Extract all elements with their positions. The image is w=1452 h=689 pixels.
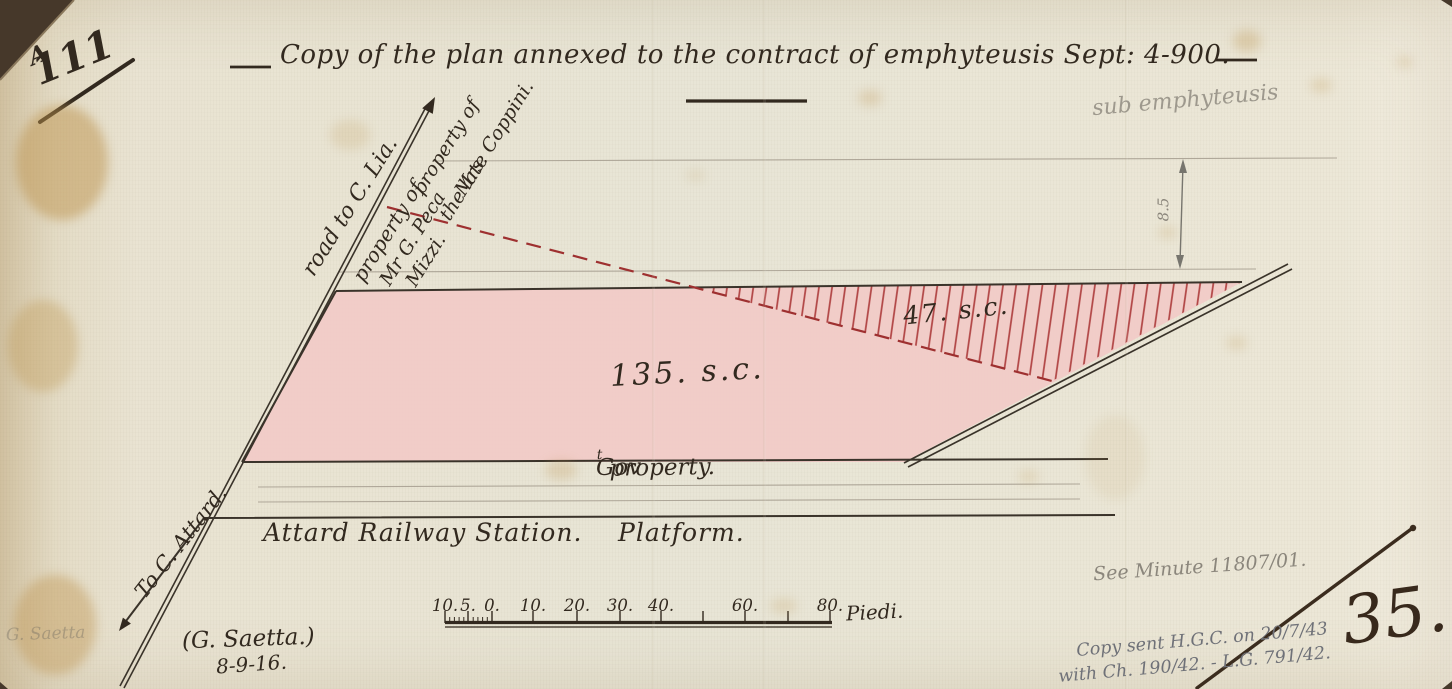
survey-date: 8-9-16. bbox=[215, 652, 287, 677]
reference-line-upper bbox=[432, 158, 1337, 161]
sheet-number-slash-dot bbox=[1410, 525, 1416, 531]
scale-label: 10. bbox=[520, 598, 546, 615]
scale-label: 20. bbox=[564, 598, 590, 615]
corner-notch-bottom-right bbox=[1442, 681, 1452, 689]
to-attard-arrowhead bbox=[119, 618, 131, 631]
dimension-arrowhead-bottom bbox=[1176, 255, 1184, 269]
scale-bar bbox=[445, 611, 832, 627]
govt-strip-line-2 bbox=[258, 499, 1080, 502]
reference-line-lower bbox=[338, 269, 1256, 272]
area-label-135: 135. s.c. bbox=[609, 354, 765, 392]
scale-label: 60. bbox=[732, 598, 758, 615]
corner-notch-bottom-left bbox=[0, 682, 8, 689]
station-label: Attard Railway Station. bbox=[263, 520, 582, 545]
scale-label: 40. bbox=[648, 598, 674, 615]
govt-strip-line-1 bbox=[258, 484, 1080, 487]
page-title: Copy of the plan annexed to the contract… bbox=[280, 42, 1230, 68]
scale-label: 5. bbox=[460, 598, 476, 615]
scale-label: 0. bbox=[484, 598, 500, 615]
surveyor-signature: (G. Saetta.) bbox=[182, 626, 315, 654]
dimension-arrow-line bbox=[1180, 164, 1183, 264]
corner-notch-top-right bbox=[1441, 0, 1452, 7]
govt-superscript: t bbox=[597, 447, 603, 463]
dimension-label: 8.5 bbox=[1156, 198, 1171, 222]
govt-property-label: Govtproperty. bbox=[596, 455, 715, 481]
govt-rest: property. bbox=[609, 454, 715, 482]
scale-label: 30. bbox=[607, 598, 633, 615]
scale-label: 10. bbox=[432, 598, 458, 615]
sheet-number: 35. bbox=[1338, 575, 1451, 655]
scale-unit-label: Piedi. bbox=[846, 601, 904, 624]
dimension-arrowhead-top bbox=[1179, 159, 1187, 173]
plan-sheet: 111A Copy of the plan annexed to the con… bbox=[0, 0, 1452, 689]
scale-label: 80. bbox=[817, 598, 843, 615]
ghost-signature: G. Saetta bbox=[6, 625, 86, 645]
platform-label: Platform. bbox=[618, 520, 745, 545]
